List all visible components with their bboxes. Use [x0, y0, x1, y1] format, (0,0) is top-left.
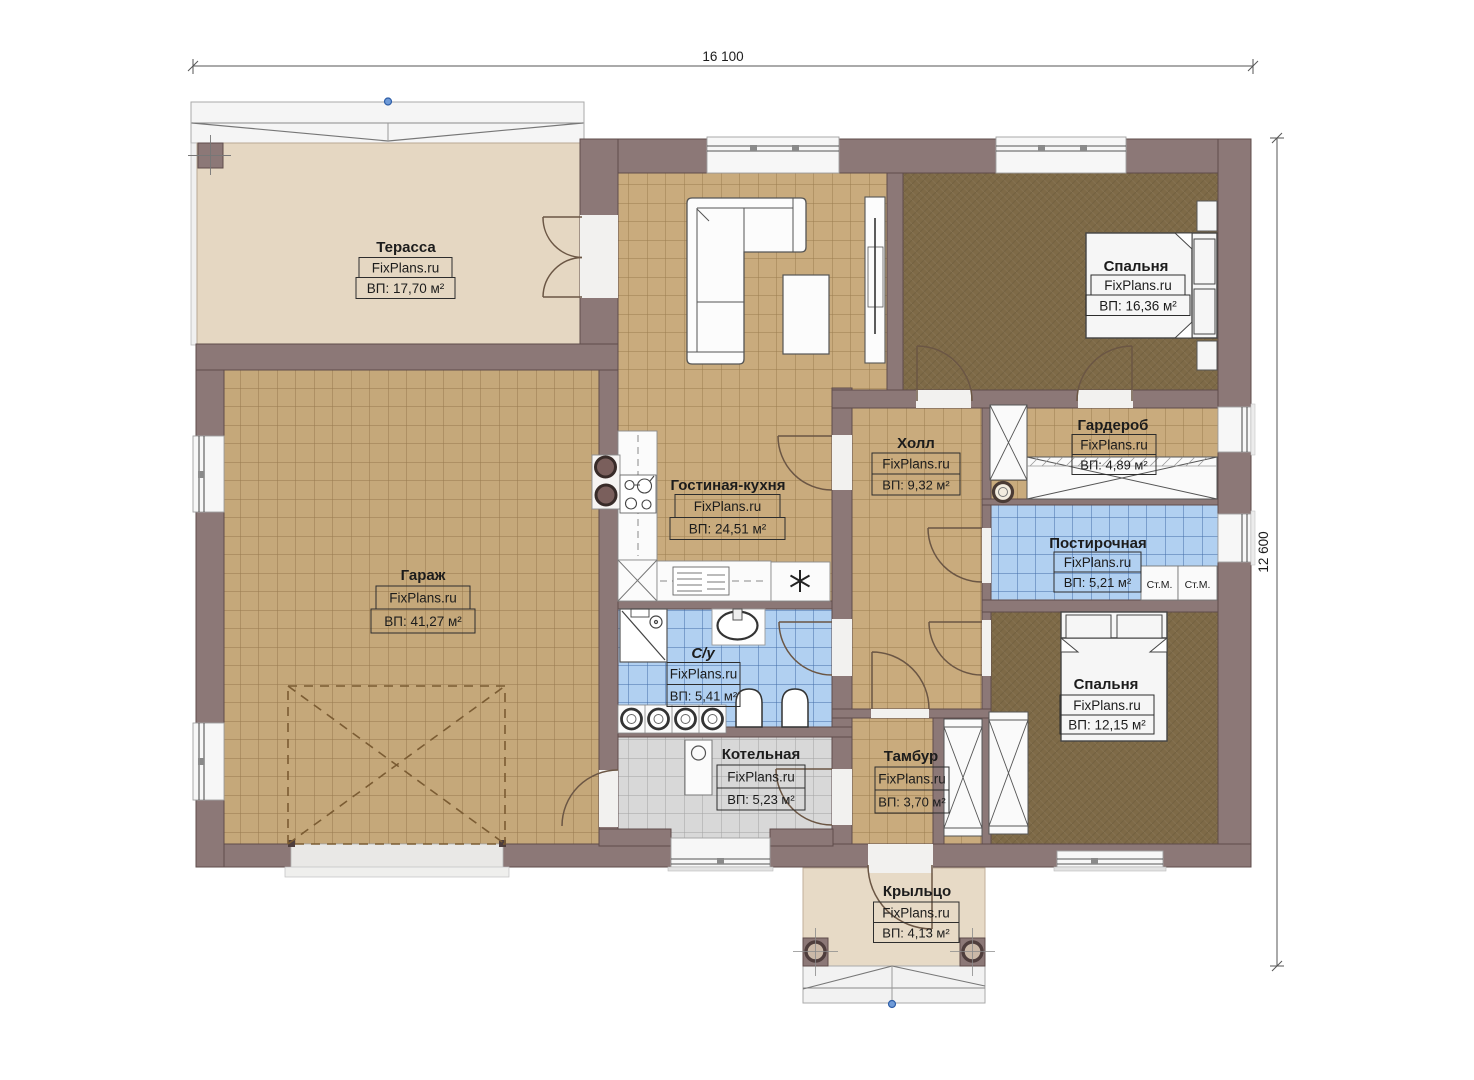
svg-text:FixPlans.ru: FixPlans.ru: [1104, 278, 1172, 293]
svg-text:Спальня: Спальня: [1104, 258, 1169, 275]
svg-text:ВП: 5,41 м²: ВП: 5,41 м²: [670, 689, 738, 704]
svg-text:FixPlans.ru: FixPlans.ru: [372, 261, 440, 276]
svg-text:ВП: 9,32 м²: ВП: 9,32 м²: [882, 478, 950, 493]
svg-text:Постирочная: Постирочная: [1049, 535, 1146, 552]
svg-text:Крыльцо: Крыльцо: [883, 883, 951, 900]
svg-text:Терасса: Терасса: [376, 239, 436, 256]
svg-text:FixPlans.ru: FixPlans.ru: [1080, 438, 1148, 453]
svg-text:Тамбур: Тамбур: [884, 748, 938, 765]
svg-text:ВП: 16,36 м²: ВП: 16,36 м²: [1099, 299, 1177, 314]
svg-text:16 100: 16 100: [702, 49, 743, 64]
svg-text:ВП: 12,15 м²: ВП: 12,15 м²: [1068, 718, 1146, 733]
svg-text:FixPlans.ru: FixPlans.ru: [878, 772, 946, 787]
svg-text:ВП: 17,70 м²: ВП: 17,70 м²: [367, 281, 445, 296]
svg-text:Ст.М.: Ст.М.: [1147, 579, 1173, 591]
svg-text:FixPlans.ru: FixPlans.ru: [694, 499, 762, 514]
svg-text:FixPlans.ru: FixPlans.ru: [727, 770, 795, 785]
svg-text:FixPlans.ru: FixPlans.ru: [389, 591, 457, 606]
svg-text:FixPlans.ru: FixPlans.ru: [882, 457, 950, 472]
svg-text:ВП: 4,13 м²: ВП: 4,13 м²: [882, 926, 950, 941]
svg-text:Гардероб: Гардероб: [1078, 417, 1149, 434]
svg-text:ВП: 24,51 м²: ВП: 24,51 м²: [689, 522, 767, 537]
svg-text:Ст.М.: Ст.М.: [1185, 579, 1211, 591]
svg-text:Котельная: Котельная: [722, 746, 801, 763]
svg-text:FixPlans.ru: FixPlans.ru: [1073, 698, 1141, 713]
svg-text:12 600: 12 600: [1256, 531, 1271, 572]
svg-text:FixPlans.ru: FixPlans.ru: [670, 667, 738, 682]
svg-text:ВП: 5,21 м²: ВП: 5,21 м²: [1064, 575, 1132, 590]
svg-text:С/у: С/у: [691, 645, 715, 662]
svg-text:ВП: 3,70 м²: ВП: 3,70 м²: [878, 795, 946, 810]
svg-text:FixPlans.ru: FixPlans.ru: [882, 906, 950, 921]
svg-text:ВП: 41,27 м²: ВП: 41,27 м²: [384, 614, 462, 629]
svg-text:ВП: 5,23 м²: ВП: 5,23 м²: [727, 792, 795, 807]
svg-text:Холл: Холл: [897, 435, 935, 452]
svg-text:FixPlans.ru: FixPlans.ru: [1064, 555, 1132, 570]
svg-text:ВП: 4,89 м²: ВП: 4,89 м²: [1080, 458, 1148, 473]
svg-text:Гараж: Гараж: [401, 567, 446, 584]
svg-text:Гостиная-кухня: Гостиная-кухня: [671, 477, 786, 494]
svg-text:Спальня: Спальня: [1074, 676, 1139, 693]
